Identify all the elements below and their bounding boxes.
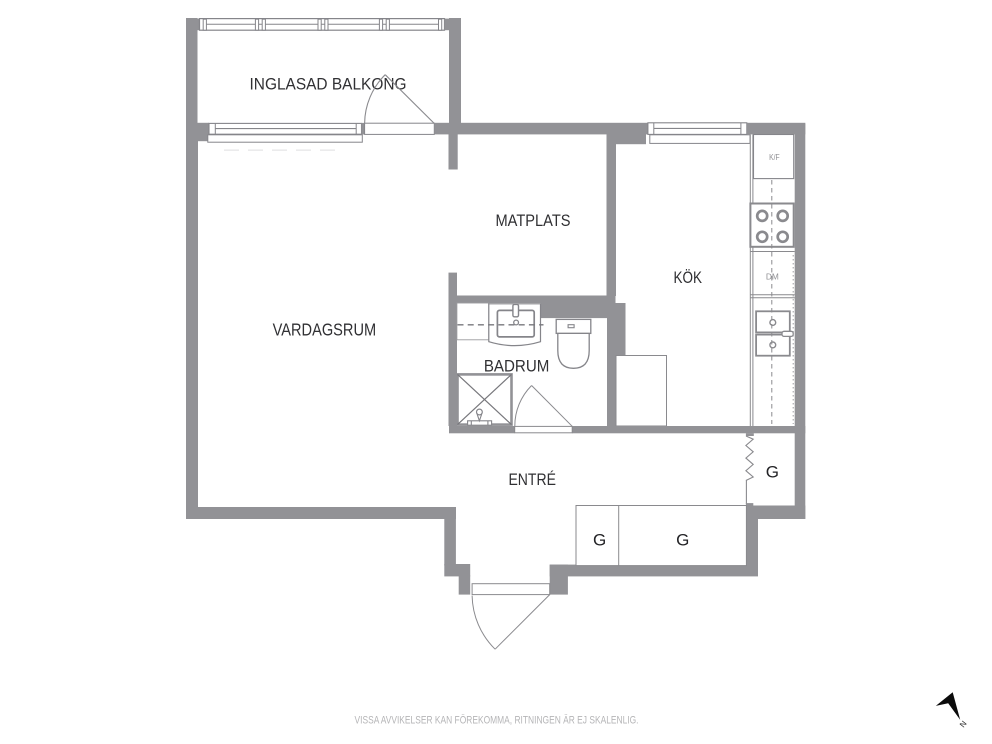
svg-text:BADRUM: BADRUM [484,358,550,376]
svg-text:KÖK: KÖK [674,269,703,287]
svg-text:G: G [676,531,689,550]
svg-text:MATPLATS: MATPLATS [496,212,571,230]
svg-text:K/F: K/F [769,152,780,162]
svg-text:ENTRÉ: ENTRÉ [508,470,556,489]
svg-text:G: G [593,531,606,550]
svg-text:DM: DM [766,272,779,282]
svg-text:VARDAGSRUM: VARDAGSRUM [273,319,377,339]
svg-text:G: G [766,463,779,482]
svg-text:VISSA AVVIKELSER KAN FÖREKOMMA: VISSA AVVIKELSER KAN FÖREKOMMA, RITNINGE… [355,715,639,727]
